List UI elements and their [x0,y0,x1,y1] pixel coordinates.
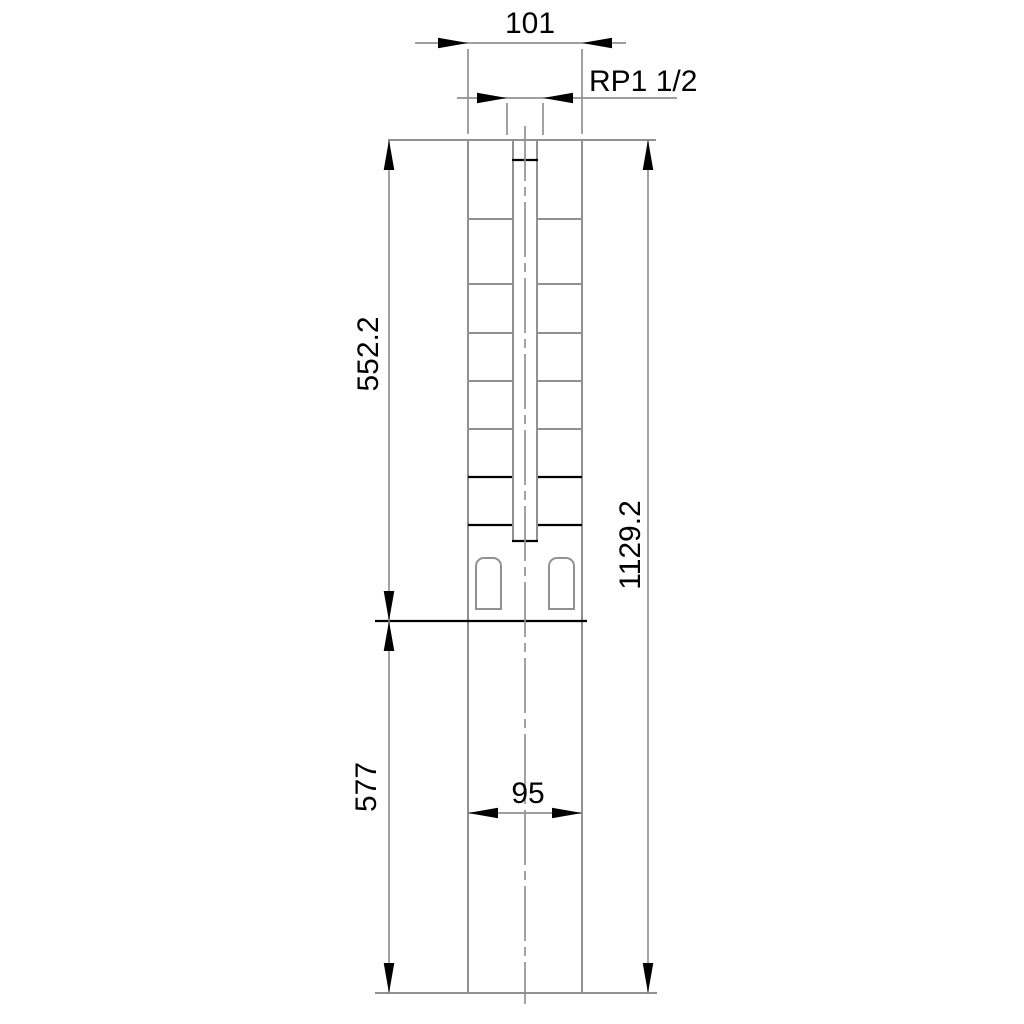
arrowhead-right [552,808,582,819]
dimension-label-width-top: 101 [505,7,555,40]
dimension-motor-length: 577 [350,621,394,993]
pump-technical-drawing: 101 RP1 1/2 552.2 577 [0,0,1024,1024]
arrowhead-left [582,38,612,49]
arrowhead-left [543,93,573,104]
arrowhead-right [477,93,507,104]
dimension-label-pump-length: 552.2 [352,316,385,391]
dimension-thread: RP1 1/2 [457,65,697,135]
arrowhead-down [384,963,395,993]
dimension-pump-length: 552.2 [352,140,394,621]
dimension-label-motor-width: 95 [511,777,544,810]
arrowhead-down [384,591,395,621]
arrowhead-up [384,140,395,170]
arrowhead-up [643,140,654,170]
cable-guard-slot-left [476,558,501,609]
dimension-label-thread: RP1 1/2 [589,65,697,98]
arrowhead-right [438,38,468,49]
arrowhead-left [468,808,498,819]
dimensional-drawing-canvas: 101 RP1 1/2 552.2 577 [0,0,1024,1024]
arrowhead-up [384,621,395,651]
cable-guard-slot-right [549,558,574,609]
dimension-label-overall-length: 1129.2 [614,500,647,590]
dimension-overall-length: 1129.2 [614,140,653,993]
dimension-label-motor-length: 577 [350,762,383,812]
arrowhead-down [643,963,654,993]
